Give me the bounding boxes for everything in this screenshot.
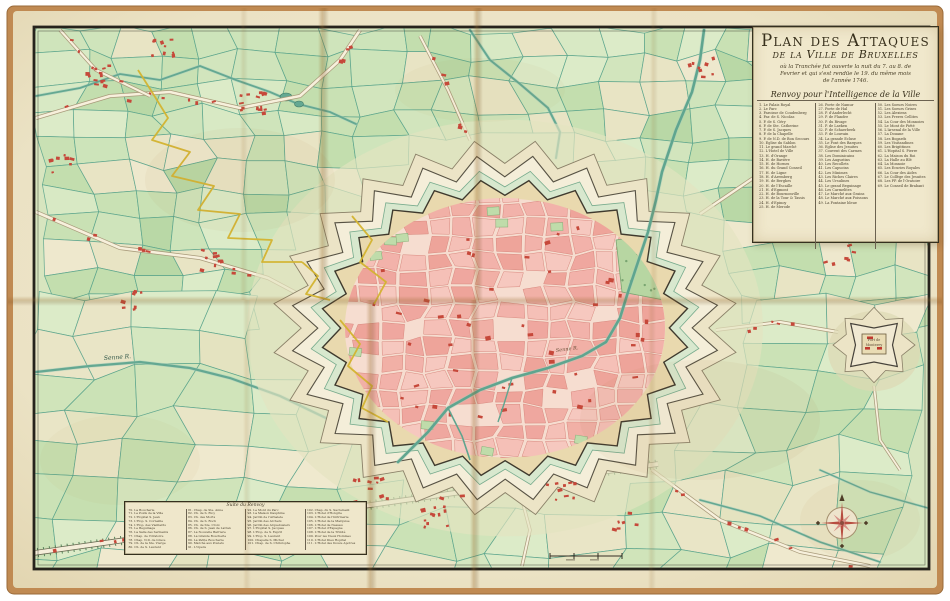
legend-entry: 111. L'Hotel des Douze Apotres [307,542,363,546]
legend-column-2: 26. Porte de Namur27. Porte de Hal28. P.… [815,103,874,249]
title-cartouche: Plan des Attaques de la Ville de Bruxell… [752,26,939,243]
map-subtitle: de la Ville de Bruxelles [757,49,934,62]
legend-column-7: 102. Chap. du S. Sacrement103. L'Hotel d… [305,509,365,550]
fort-label-line1: Fort de [868,338,880,342]
legend-column-4: 70. La Boucherie71. Le Poids de la Ville… [127,509,186,550]
map-dedication: où la Tranchée fut ouverte la nuit du 7.… [757,64,934,85]
brussels-siege-map: Senne R. Senne R. Fort de Monterey Plan … [0,0,950,601]
legend-columns: 1. Le Palais Royal2. Le Parc3. Paroisse … [757,103,934,249]
legend-entry: 25. H. de Merode [759,205,813,209]
legend-column-6: 92. Le Mont du Parc93. La Maison Dauphin… [245,509,305,550]
legend-column-5: 81. Chap. de Ste. Anne82. Ch. de S. Eloy… [186,509,246,550]
legend-column-1: 1. Le Palais Royal2. Le Parc3. Paroisse … [757,103,815,249]
map-title: Plan des Attaques [757,32,934,49]
legend-entry: 101. Chap. de S. Christophe [248,542,304,546]
legend-entry: 80. Ch. de S. Laurent [129,546,185,550]
legend-entry: 91. L'Opera [188,546,244,550]
legend-header: Renvoy pour l'Intelligence de la Ville [757,90,934,101]
legend-entry: 49. La Fontaine bleue [818,201,872,205]
dedication-line: de l'année 1746. [757,78,934,85]
legend-entry: 48. Le Marché aux Poissons [818,196,872,200]
legend-entry: 69. Le Conseil de Brabant [878,184,932,188]
legend-column-3: 50. Les Soeurs Noires51. Les Soeurs Gris… [875,103,934,249]
legend-continuation: Suite du Renvoy 70. La Boucherie71. Le P… [124,501,367,555]
legend-continuation-columns: 70. La Boucherie71. Le Poids de la Ville… [127,509,364,550]
fort-label-line2: Monterey [866,343,883,347]
